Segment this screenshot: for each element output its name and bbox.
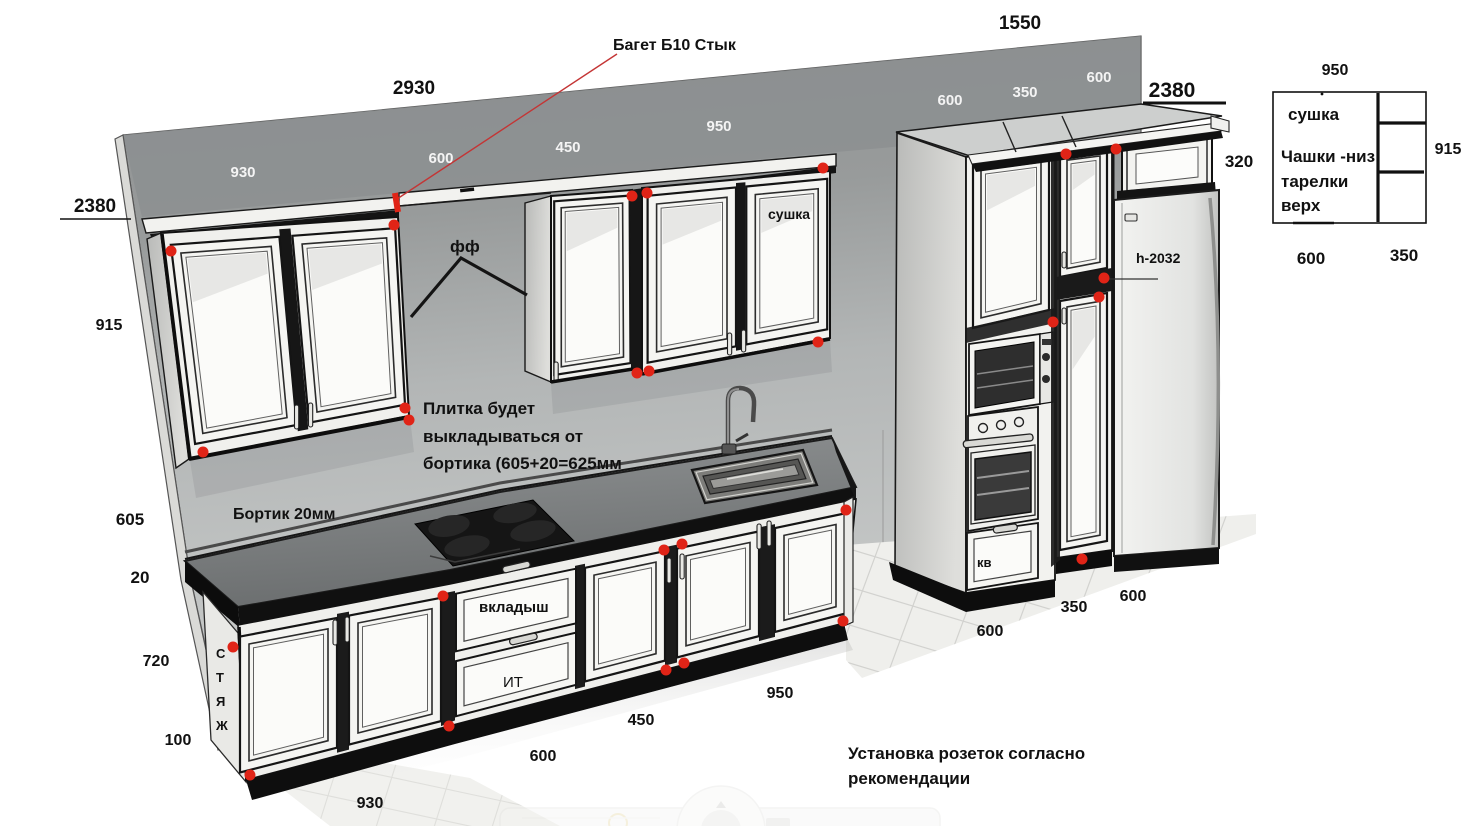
svg-text:ИТ: ИТ bbox=[503, 674, 523, 691]
svg-text:450: 450 bbox=[628, 712, 655, 729]
svg-text:верх: верх bbox=[1281, 196, 1321, 215]
svg-text:600: 600 bbox=[1120, 588, 1147, 605]
svg-text:915: 915 bbox=[96, 317, 123, 334]
svg-text:Установка розеток согласно: Установка розеток согласно bbox=[848, 744, 1085, 763]
svg-text:600: 600 bbox=[428, 150, 453, 167]
svg-text:600: 600 bbox=[977, 623, 1004, 640]
svg-text:1550: 1550 bbox=[999, 13, 1041, 34]
svg-text:2380: 2380 bbox=[1149, 79, 1196, 102]
svg-text:выкладываться от: выкладываться от bbox=[423, 427, 583, 446]
svg-text:кв: кв bbox=[977, 555, 992, 570]
svg-text:фф: фф bbox=[450, 237, 480, 256]
svg-text:605: 605 bbox=[116, 510, 144, 529]
svg-text:950: 950 bbox=[767, 685, 794, 702]
svg-text:Бортик 20мм: Бортик 20мм bbox=[233, 506, 335, 523]
svg-text:600: 600 bbox=[1297, 249, 1325, 268]
svg-text:2380: 2380 bbox=[74, 196, 116, 217]
svg-text:сушка: сушка bbox=[1288, 105, 1340, 124]
svg-text:Багет Б10 Стык: Багет Б10 Стык bbox=[613, 37, 737, 54]
svg-text:вкладыш: вкладыш bbox=[479, 599, 549, 616]
svg-text:450: 450 bbox=[555, 139, 580, 156]
svg-text:350: 350 bbox=[1012, 84, 1037, 101]
svg-text:20: 20 bbox=[131, 568, 150, 587]
svg-text:100: 100 bbox=[165, 732, 192, 749]
svg-text:600: 600 bbox=[1086, 69, 1111, 86]
svg-text:350: 350 bbox=[1390, 246, 1418, 265]
svg-text:320: 320 bbox=[1225, 152, 1253, 171]
svg-text:600: 600 bbox=[530, 748, 557, 765]
svg-text:Ж: Ж bbox=[215, 718, 228, 733]
svg-text:С: С bbox=[216, 646, 226, 661]
svg-text:930: 930 bbox=[230, 164, 255, 181]
svg-text:h-2032: h-2032 bbox=[1136, 250, 1181, 266]
svg-text:Т: Т bbox=[216, 670, 224, 685]
svg-text:2930: 2930 bbox=[393, 78, 435, 99]
svg-text:бортика (605+20=625мм: бортика (605+20=625мм bbox=[423, 454, 622, 473]
svg-text:350: 350 bbox=[1061, 599, 1088, 616]
svg-text:сушка: сушка bbox=[768, 206, 810, 222]
svg-text:Чашки -низ: Чашки -низ bbox=[1281, 147, 1375, 166]
svg-text:Плитка будет: Плитка будет bbox=[423, 399, 535, 418]
svg-text:600: 600 bbox=[937, 92, 962, 109]
svg-text:рекомендации: рекомендации bbox=[848, 769, 970, 788]
svg-text:950: 950 bbox=[706, 118, 731, 135]
svg-text:Я: Я bbox=[216, 694, 225, 709]
svg-text:950: 950 bbox=[1322, 62, 1349, 79]
svg-text:720: 720 bbox=[143, 653, 170, 670]
svg-text:930: 930 bbox=[357, 795, 384, 812]
svg-text:915: 915 bbox=[1435, 141, 1462, 158]
svg-text:тарелки: тарелки bbox=[1281, 172, 1348, 191]
